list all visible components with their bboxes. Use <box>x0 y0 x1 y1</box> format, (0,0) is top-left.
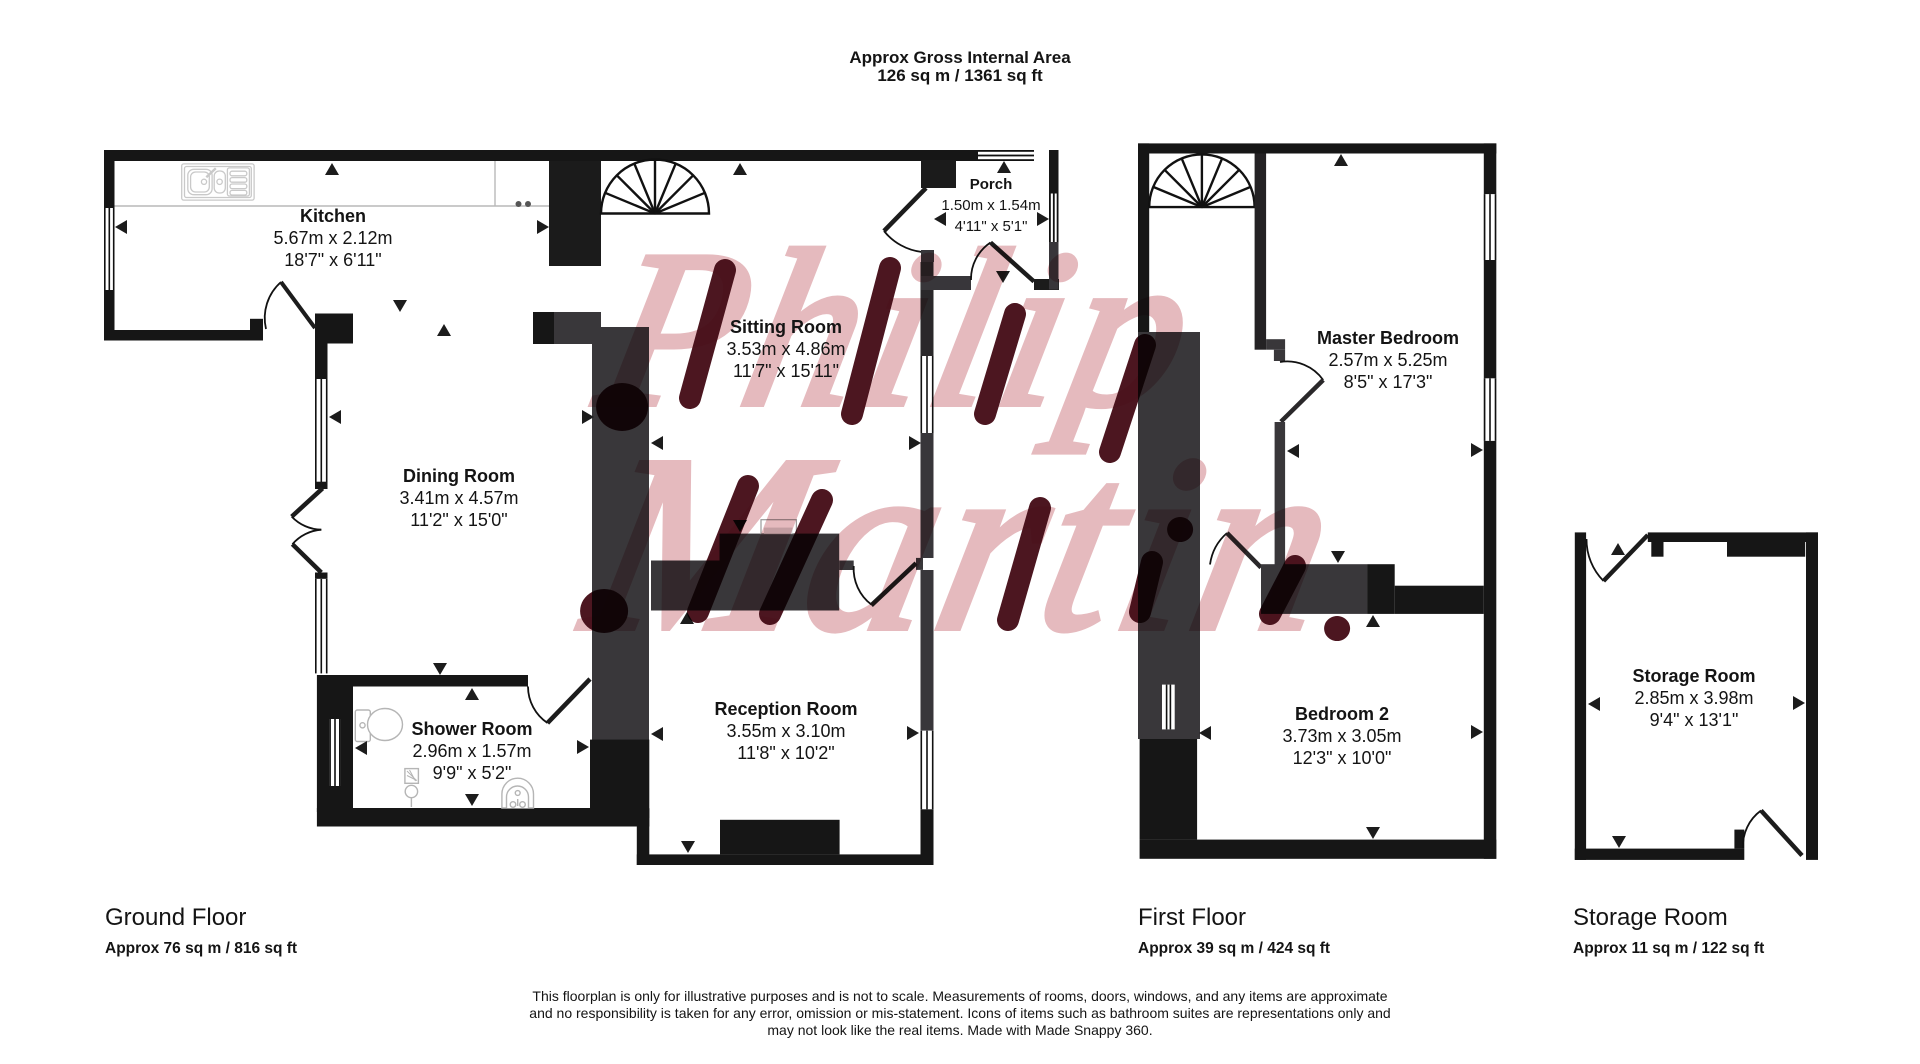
svg-text:9'4" x 13'1": 9'4" x 13'1" <box>1650 710 1739 730</box>
svg-text:Ground Floor: Ground Floor <box>105 904 246 931</box>
svg-text:Reception Room: Reception Room <box>714 699 857 719</box>
svg-text:3.73m x 3.05m: 3.73m x 3.05m <box>1282 726 1401 746</box>
svg-text:Approx 11 sq m / 122 sq ft: Approx 11 sq m / 122 sq ft <box>1573 940 1764 957</box>
svg-text:18'7" x 6'11": 18'7" x 6'11" <box>284 250 381 270</box>
svg-text:This floorplan is only for ill: This floorplan is only for illustrative … <box>532 988 1387 1004</box>
svg-text:11'2" x 15'0": 11'2" x 15'0" <box>410 510 507 530</box>
svg-text:may not look like the real ite: may not look like the real items. Made w… <box>767 1022 1152 1038</box>
svg-text:Approx 39 sq m / 424 sq ft: Approx 39 sq m / 424 sq ft <box>1138 940 1330 957</box>
svg-text:Approx Gross Internal Area: Approx Gross Internal Area <box>849 48 1071 67</box>
svg-text:4'11" x 5'1": 4'11" x 5'1" <box>955 218 1028 235</box>
svg-text:2.57m x 5.25m: 2.57m x 5.25m <box>1328 350 1447 370</box>
svg-text:3.55m x 3.10m: 3.55m x 3.10m <box>726 721 845 741</box>
svg-text:2.85m x 3.98m: 2.85m x 3.98m <box>1634 688 1753 708</box>
svg-text:Storage Room: Storage Room <box>1632 666 1755 686</box>
svg-text:Kitchen: Kitchen <box>300 206 366 226</box>
svg-text:126 sq m / 1361 sq ft: 126 sq m / 1361 sq ft <box>877 66 1043 85</box>
svg-text:Storage Room: Storage Room <box>1573 904 1728 931</box>
svg-text:Approx 76 sq m / 816 sq ft: Approx 76 sq m / 816 sq ft <box>105 940 297 957</box>
svg-text:11'7" x 15'11": 11'7" x 15'11" <box>733 361 839 381</box>
svg-text:Master Bedroom: Master Bedroom <box>1317 328 1459 348</box>
svg-text:12'3" x 10'0": 12'3" x 10'0" <box>1293 748 1392 768</box>
svg-text:Sitting Room: Sitting Room <box>730 317 842 337</box>
svg-text:Dining Room: Dining Room <box>403 466 515 486</box>
svg-text:9'9" x 5'2": 9'9" x 5'2" <box>433 763 512 783</box>
svg-text:3.53m x 4.86m: 3.53m x 4.86m <box>726 339 845 359</box>
svg-text:Bedroom 2: Bedroom 2 <box>1295 704 1389 724</box>
svg-text:3.41m x 4.57m: 3.41m x 4.57m <box>399 488 518 508</box>
svg-text:and no responsibility is taken: and no responsibility is taken for any e… <box>529 1005 1390 1021</box>
svg-text:Martin: Martin <box>565 405 1363 684</box>
svg-text:First Floor: First Floor <box>1138 904 1246 931</box>
svg-text:8'5" x 17'3": 8'5" x 17'3" <box>1344 372 1433 392</box>
svg-text:1.50m x 1.54m: 1.50m x 1.54m <box>941 197 1040 214</box>
svg-text:5.67m x 2.12m: 5.67m x 2.12m <box>273 228 392 248</box>
svg-text:Shower Room: Shower Room <box>411 719 532 739</box>
svg-text:2.96m x 1.57m: 2.96m x 1.57m <box>412 741 531 761</box>
svg-text:11'8" x 10'2": 11'8" x 10'2" <box>737 743 834 763</box>
svg-text:Porch: Porch <box>970 176 1013 193</box>
